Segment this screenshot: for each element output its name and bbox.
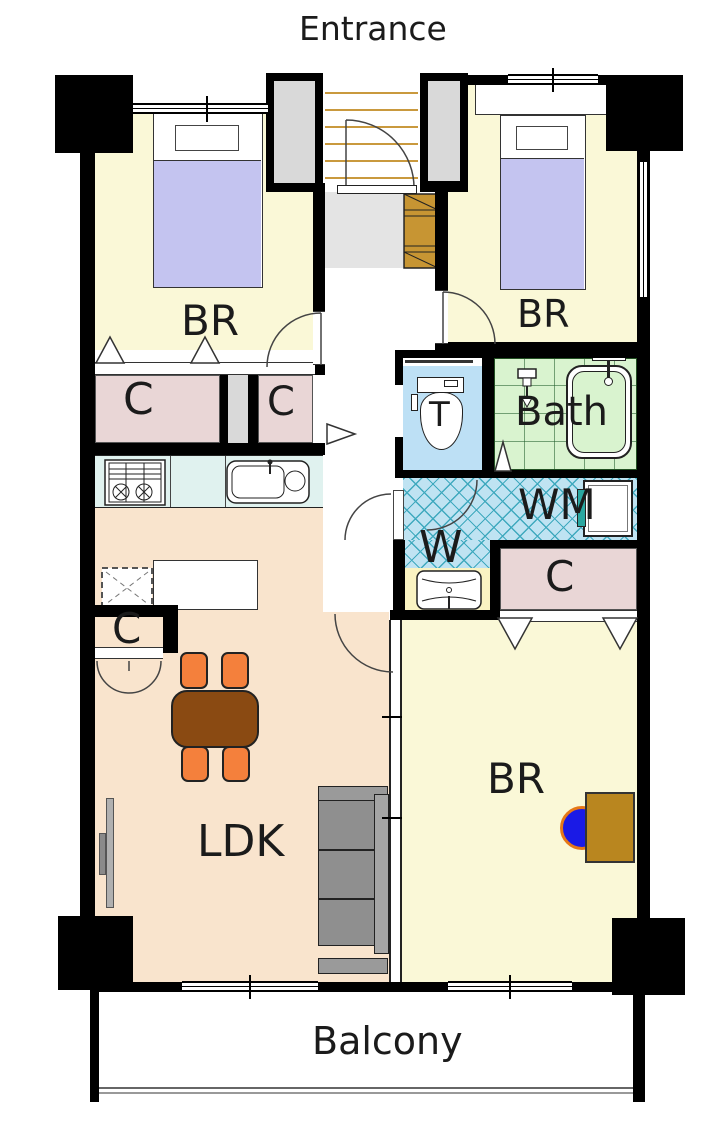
window-tick [206, 96, 208, 122]
vanity-sink [416, 570, 482, 610]
kitchen-sink [226, 458, 312, 506]
door-arc [265, 311, 323, 369]
shoe-cabinet [403, 193, 439, 269]
tv-stand [99, 833, 106, 875]
pillow [175, 125, 239, 151]
wall [318, 982, 448, 992]
entrance-threshold [337, 185, 417, 194]
dining-chair [221, 652, 249, 689]
entry-hall-floor [325, 192, 403, 268]
washing-machine-label: WM [518, 484, 596, 526]
dining-chair [222, 746, 250, 782]
window-tick [552, 68, 554, 92]
closet-label: C [112, 608, 141, 650]
door-arc [343, 492, 393, 542]
counter-island [153, 560, 258, 610]
door-arc [441, 290, 497, 346]
folding-door-marker [601, 616, 639, 652]
bed [500, 115, 586, 290]
bath-label: Bath [515, 392, 608, 432]
floor-plan: Entrance BR BR C C T Bath WM W C C LDK B… [0, 0, 720, 1146]
duct-shaft [274, 81, 315, 183]
wall [572, 982, 648, 992]
stove [104, 459, 166, 506]
balcony-wall-left [90, 988, 99, 1102]
sofa [316, 786, 390, 974]
window [133, 103, 268, 114]
desk [585, 792, 635, 863]
partition-tick [382, 716, 402, 718]
sliding-partition [389, 620, 402, 982]
wall [490, 548, 500, 610]
dining-chair [181, 746, 209, 782]
door-arc [333, 612, 395, 674]
closet-top-left-floor [95, 375, 220, 443]
ldk-label: LDK [197, 820, 284, 864]
toilet-tank-button [444, 380, 458, 387]
duct-shaft [428, 81, 460, 181]
bedroom-label: BR [487, 758, 545, 800]
wall [90, 982, 182, 992]
window-tick [249, 975, 251, 999]
pillar [606, 75, 683, 151]
wall [220, 373, 228, 443]
wall [80, 443, 325, 455]
balcony-railing [99, 1087, 633, 1089]
door-leaf [393, 490, 404, 540]
dining-chair [180, 652, 208, 689]
toilet-shelf-line [405, 360, 473, 363]
dining-table [171, 690, 259, 748]
tv [106, 798, 114, 908]
bath-faucet-drop [604, 377, 613, 386]
wall [395, 470, 637, 478]
sofa-armrest [318, 958, 388, 974]
closet-divider [228, 373, 248, 443]
balcony-railing [99, 1092, 633, 1094]
bed-blanket [501, 158, 584, 289]
sofa-seat [318, 800, 376, 946]
entrance-door-arc [343, 118, 417, 194]
wall [163, 605, 178, 653]
washroom-label: W [419, 526, 463, 570]
folding-door-marker [94, 335, 126, 365]
double-door-arcs [95, 659, 165, 697]
closet-label: C [545, 556, 574, 598]
wall [248, 373, 258, 443]
balcony-wall-right [633, 995, 645, 1102]
bay-window-counter [475, 84, 607, 115]
bath-faucet-stem [607, 361, 610, 378]
folding-door-marker [325, 421, 357, 447]
closet-label: C [123, 378, 154, 422]
balcony-label: Balcony [312, 1022, 463, 1060]
bed [153, 113, 263, 288]
wall-left-outer [80, 103, 95, 916]
toilet-label: T [429, 398, 450, 432]
pillow [516, 126, 568, 150]
bedroom-label: BR [517, 295, 569, 333]
wall [390, 610, 500, 620]
window-side [639, 162, 648, 297]
wall [490, 540, 637, 548]
closet-label: C [267, 382, 295, 422]
bed-blanket [154, 160, 261, 287]
folding-door-marker [496, 616, 534, 652]
entrance-label: Entrance [299, 12, 447, 45]
window-tick [509, 975, 511, 999]
partition-tick [382, 817, 402, 819]
pillar [58, 916, 133, 990]
wall [395, 350, 637, 358]
toilet-door-gap [395, 385, 403, 437]
wall [393, 540, 405, 612]
toilet-lever [411, 394, 418, 411]
kitchen-counter-divider [170, 456, 171, 507]
bath-door-marker [492, 440, 514, 474]
bedroom-label: BR [181, 300, 239, 342]
